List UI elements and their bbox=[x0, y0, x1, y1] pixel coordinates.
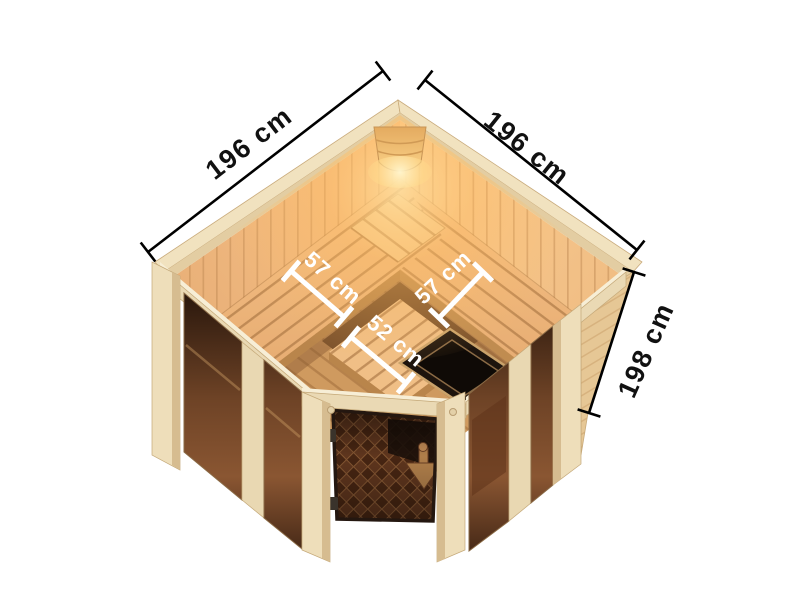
mullion-left bbox=[242, 342, 264, 518]
sauna-illustration: 196 cm 196 cm 198 cm 57 cm 57 cm 52 cm bbox=[0, 0, 800, 600]
glass-pane-left-2 bbox=[264, 360, 302, 549]
sauna-product-image: 196 cm 196 cm 198 cm 57 cm 57 cm 52 cm bbox=[0, 0, 800, 600]
post-dowel bbox=[328, 407, 335, 414]
mullion-right bbox=[509, 344, 531, 521]
post-dowel bbox=[450, 409, 457, 416]
glass-pane-right-2 bbox=[531, 326, 553, 503]
